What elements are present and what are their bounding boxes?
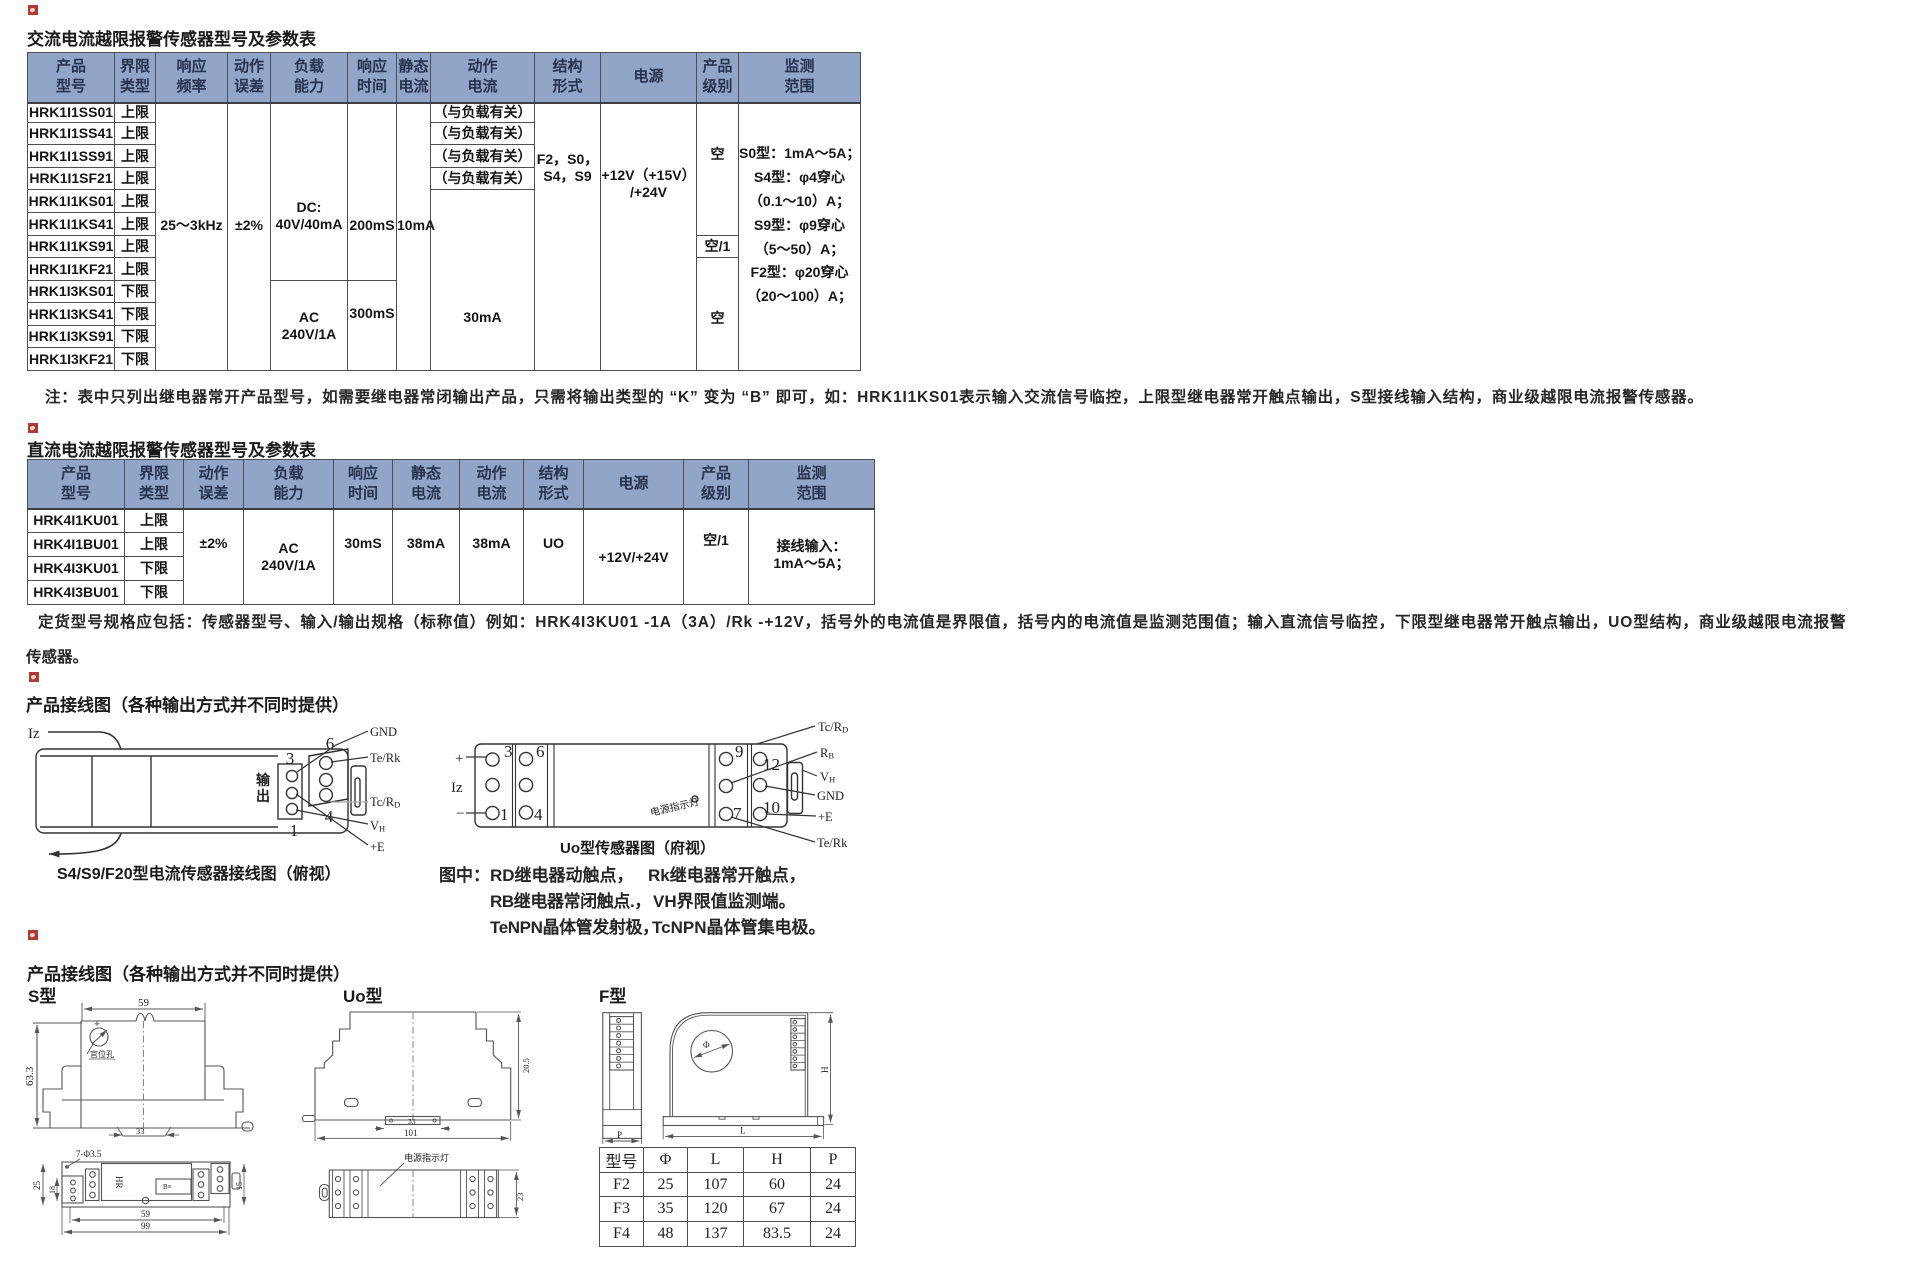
svg-text:59: 59 — [138, 997, 150, 1009]
svg-text:59: 59 — [141, 1209, 151, 1219]
svg-text:P: P — [617, 1130, 622, 1140]
svg-text:Iz: Iz — [451, 780, 463, 796]
svg-text:电源指示灯: 电源指示灯 — [649, 795, 701, 819]
svg-text:+E: +E — [818, 810, 833, 824]
svg-text:官位孔: 官位孔 — [90, 1049, 114, 1059]
svg-text:GND: GND — [370, 725, 397, 739]
svg-text:20.5: 20.5 — [521, 1058, 531, 1073]
svg-text:B≡: B≡ — [163, 1183, 172, 1191]
svg-text:Φ: Φ — [703, 1040, 710, 1050]
svg-text:RB: RB — [820, 746, 834, 761]
svg-text:H: H — [820, 1066, 830, 1073]
svg-text:23: 23 — [515, 1193, 525, 1202]
svg-text:HR: HR — [114, 1176, 124, 1189]
svg-text:15: 15 — [235, 1182, 244, 1190]
svg-text:7-Φ3.5: 7-Φ3.5 — [76, 1149, 102, 1159]
svg-text:25: 25 — [32, 1181, 42, 1191]
svg-text:GND: GND — [817, 789, 844, 803]
svg-text:63.3: 63.3 — [24, 1066, 36, 1086]
svg-text:101: 101 — [404, 1128, 418, 1138]
svg-text:33: 33 — [136, 1126, 145, 1136]
svg-text:4: 4 — [534, 805, 543, 824]
svg-text:99: 99 — [141, 1221, 151, 1231]
svg-text:VH: VH — [820, 770, 835, 785]
svg-text:3: 3 — [504, 742, 513, 761]
svg-text:33: 33 — [408, 1117, 416, 1126]
svg-text:6: 6 — [326, 734, 335, 753]
svg-text:Tc/RD: Tc/RD — [818, 720, 848, 735]
svg-text:Tc/RD: Tc/RD — [370, 795, 400, 810]
svg-text:+: + — [455, 751, 463, 767]
svg-text:1: 1 — [290, 821, 299, 840]
svg-text:+E: +E — [370, 840, 385, 854]
svg-text:18: 18 — [48, 1186, 57, 1194]
svg-text:电源指示灯: 电源指示灯 — [404, 1152, 449, 1163]
svg-text:3: 3 — [286, 749, 295, 768]
svg-text:9: 9 — [735, 742, 744, 761]
svg-text:6: 6 — [536, 742, 545, 761]
svg-text:Te/Rk: Te/Rk — [817, 836, 848, 850]
svg-text:VH: VH — [370, 819, 385, 834]
svg-text:L: L — [740, 1126, 746, 1136]
svg-text:1: 1 — [500, 805, 509, 824]
svg-text:Te/Rk: Te/Rk — [370, 751, 401, 765]
svg-text:输: 输 — [256, 772, 271, 789]
svg-text:Iz: Iz — [28, 726, 40, 742]
svg-text:出: 出 — [256, 788, 270, 805]
svg-text:−: − — [456, 806, 464, 822]
